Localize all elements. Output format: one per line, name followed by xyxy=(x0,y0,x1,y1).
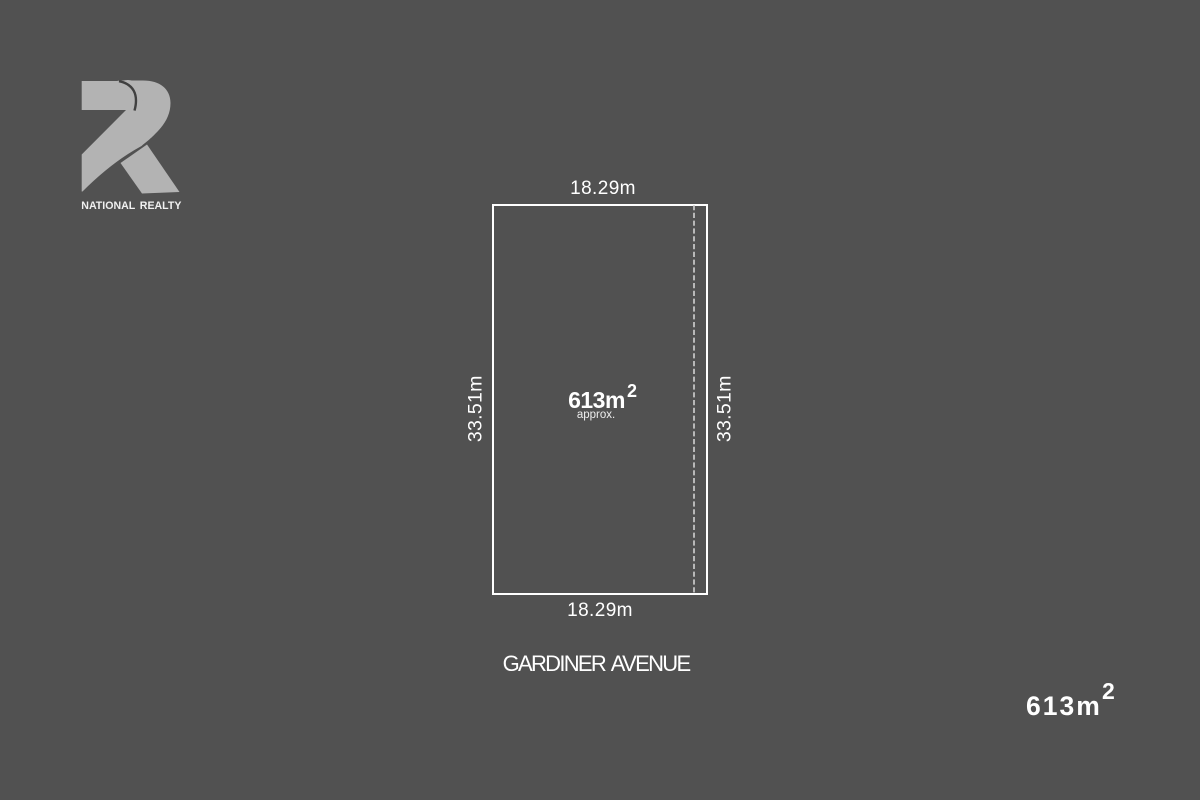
svg-text:NATIONALREALTY: NATIONALREALTY xyxy=(81,200,181,212)
